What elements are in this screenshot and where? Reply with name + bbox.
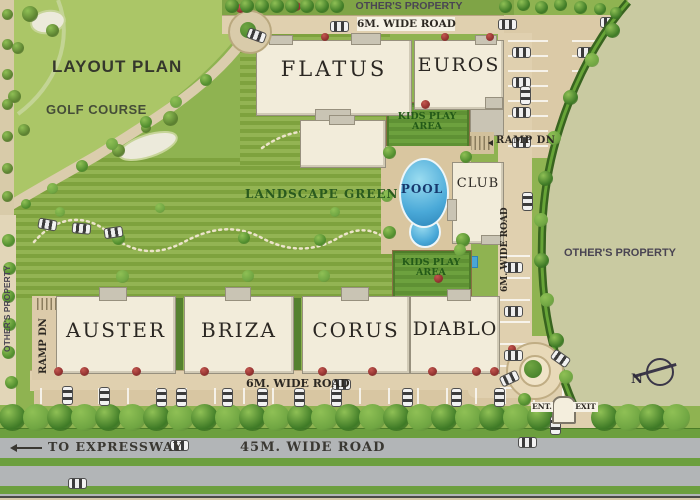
- tree-icon: [55, 207, 65, 217]
- west-arrow-icon: [16, 447, 42, 449]
- car-icon: [222, 388, 233, 407]
- shrub-icon: [54, 367, 63, 376]
- car-icon: [494, 388, 505, 407]
- tree-icon: [335, 404, 362, 431]
- tree-icon: [76, 160, 88, 172]
- shrub-icon: [441, 33, 449, 41]
- building-diablo-label: DIABLO: [411, 320, 499, 340]
- tree-icon: [167, 404, 194, 431]
- building-flatus: FLATUS: [256, 40, 412, 116]
- shrub-icon: [472, 367, 481, 376]
- building-corus-label: CORUS: [303, 320, 409, 341]
- shrub-icon: [318, 367, 327, 376]
- tree-icon: [534, 213, 548, 227]
- tree-icon: [517, 0, 530, 11]
- landscape-green-label: LANDSCAPE GREEN: [245, 188, 377, 201]
- building-flatus-label: FLATUS: [257, 58, 411, 80]
- tree-icon: [594, 3, 606, 15]
- tree-icon: [2, 99, 13, 110]
- tree-icon: [47, 183, 58, 194]
- tree-icon: [455, 404, 482, 431]
- shrub-icon: [321, 33, 329, 41]
- site-layout-plan: FLATUS EUROS CLUB AUSTER BRIZA CORUS DIA…: [0, 0, 700, 500]
- tree-icon: [18, 124, 30, 136]
- roundabout-entrance-island: [524, 360, 542, 378]
- car-icon: [68, 478, 87, 489]
- side-road-label: 6M. WIDE ROAD: [501, 192, 510, 292]
- tree-icon: [574, 1, 587, 14]
- car-icon: [330, 21, 349, 32]
- car-icon: [522, 192, 533, 211]
- tree-icon: [170, 96, 182, 108]
- building-briza-label: BRIZA: [185, 320, 293, 341]
- shrub-icon: [490, 367, 499, 376]
- club-label: CLUB: [453, 177, 503, 191]
- car-icon: [402, 388, 413, 407]
- tree-icon: [359, 404, 386, 431]
- ramp-arrow-icon: [488, 140, 493, 146]
- car-icon: [331, 388, 342, 407]
- tree-icon: [663, 404, 690, 431]
- bottom-road-label: 6M. WIDE ROAD: [246, 378, 336, 390]
- tree-icon: [563, 90, 578, 105]
- car-icon: [504, 306, 523, 317]
- shrub-icon: [421, 100, 430, 109]
- tree-icon: [407, 404, 434, 431]
- tree-icon: [71, 404, 98, 431]
- tree-icon: [318, 270, 330, 282]
- tree-icon: [540, 293, 554, 307]
- car-icon: [498, 19, 517, 30]
- tree-icon: [239, 404, 266, 431]
- shrub-icon: [132, 367, 141, 376]
- tree-icon: [47, 404, 74, 431]
- tree-icon: [22, 6, 38, 22]
- divider-planter: [176, 298, 183, 370]
- shrub-icon: [368, 367, 377, 376]
- shrub-icon: [80, 367, 89, 376]
- tree-icon: [2, 131, 13, 142]
- tree-icon: [46, 24, 59, 37]
- pool-label: POOL: [399, 183, 445, 196]
- tree-icon: [615, 404, 642, 431]
- building-corus: CORUS: [302, 296, 410, 374]
- shrub-icon: [245, 367, 254, 376]
- tree-icon: [460, 151, 472, 163]
- car-icon: [62, 386, 73, 405]
- tree-icon: [383, 146, 396, 159]
- tree-icon: [163, 111, 178, 126]
- tree-icon: [191, 404, 218, 431]
- tree-icon: [119, 404, 146, 431]
- building-flatus-wing: [300, 120, 386, 168]
- building-briza: BRIZA: [184, 296, 294, 374]
- tree-icon: [5, 376, 18, 389]
- building-diablo: DIABLO: [410, 296, 500, 374]
- kids-play-area-2-label: KIDS PLAY AREA: [395, 258, 467, 278]
- tree-icon: [140, 116, 152, 128]
- tree-icon: [95, 404, 122, 431]
- compass-n-label: N: [631, 373, 643, 387]
- tree-icon: [639, 404, 666, 431]
- tree-icon: [454, 244, 466, 256]
- car-icon: [257, 388, 268, 407]
- tree-icon: [383, 226, 396, 239]
- golf-course-label: GOLF COURSE: [46, 103, 147, 117]
- ramp-dn-top-label: RAMP DN: [496, 136, 555, 147]
- car-icon: [504, 350, 523, 361]
- page-title: LAYOUT PLAN: [52, 58, 182, 76]
- tree-icon: [330, 207, 340, 217]
- others-property-region: [542, 0, 700, 406]
- tree-icon: [610, 7, 622, 19]
- tree-icon: [106, 138, 118, 150]
- main-road-label: 45M. WIDE ROAD: [240, 441, 385, 455]
- building-euros-label: EUROS: [415, 56, 503, 76]
- ramp-dn-left-label: RAMP DN: [39, 308, 50, 374]
- car-icon: [176, 388, 187, 407]
- tree-icon: [554, 0, 567, 11]
- tree-icon: [21, 199, 31, 209]
- gate-ent-label: ENT.: [531, 402, 553, 412]
- tree-icon: [2, 163, 13, 174]
- tree-icon: [605, 23, 620, 38]
- divider-planter: [294, 298, 301, 370]
- tree-icon: [549, 333, 564, 348]
- car-icon: [520, 86, 531, 105]
- top-road-label: 6M. WIDE ROAD: [357, 17, 455, 31]
- car-icon: [451, 388, 462, 407]
- shrub-icon: [486, 33, 494, 41]
- tree-icon: [2, 69, 13, 80]
- tree-icon: [143, 404, 170, 431]
- tree-icon: [215, 404, 242, 431]
- tree-icon: [383, 404, 410, 431]
- shrub-icon: [428, 367, 437, 376]
- car-icon: [156, 388, 167, 407]
- tree-icon: [2, 39, 13, 50]
- kids-play-area-1-label: KIDS PLAY AREA: [390, 112, 464, 132]
- tree-icon: [12, 42, 24, 54]
- building-auster-label: AUSTER: [57, 320, 175, 341]
- tree-icon: [23, 404, 50, 431]
- tree-icon: [2, 9, 13, 20]
- west-arrow-head-icon: [10, 444, 17, 452]
- tree-icon: [585, 53, 599, 67]
- tree-icon: [2, 191, 13, 202]
- others-property-right-label: OTHER'S PROPERTY: [548, 248, 692, 260]
- others-property-left-label: OTHER'S PROPERTY: [3, 246, 12, 352]
- tree-icon: [559, 370, 573, 384]
- car-icon: [99, 387, 110, 406]
- expressway-label: TO EXPRESSWAY: [48, 440, 183, 453]
- tree-icon: [242, 270, 254, 282]
- tree-icon: [2, 234, 15, 247]
- building-auster: AUSTER: [56, 296, 176, 374]
- gate-exit-label: EXIT: [573, 402, 598, 412]
- car-icon: [518, 437, 537, 448]
- tree-icon: [431, 404, 458, 431]
- tree-icon: [238, 232, 250, 244]
- tree-icon: [155, 203, 165, 213]
- tree-icon: [499, 0, 512, 13]
- tree-icon: [116, 270, 129, 283]
- tree-icon: [314, 234, 326, 246]
- tree-icon: [535, 1, 548, 14]
- tree-icon: [263, 404, 290, 431]
- tree-icon: [534, 253, 549, 268]
- tree-icon: [287, 404, 314, 431]
- others-property-top-label: OTHER'S PROPERTY: [344, 1, 474, 12]
- shrub-icon: [200, 367, 209, 376]
- tree-icon: [0, 404, 26, 431]
- tree-icon: [538, 171, 553, 186]
- club-building: CLUB: [452, 162, 504, 244]
- tree-icon: [200, 74, 212, 86]
- tree-icon: [503, 404, 530, 431]
- car-icon: [294, 388, 305, 407]
- tree-icon: [479, 404, 506, 431]
- car-icon: [72, 222, 92, 235]
- tree-icon: [311, 404, 338, 431]
